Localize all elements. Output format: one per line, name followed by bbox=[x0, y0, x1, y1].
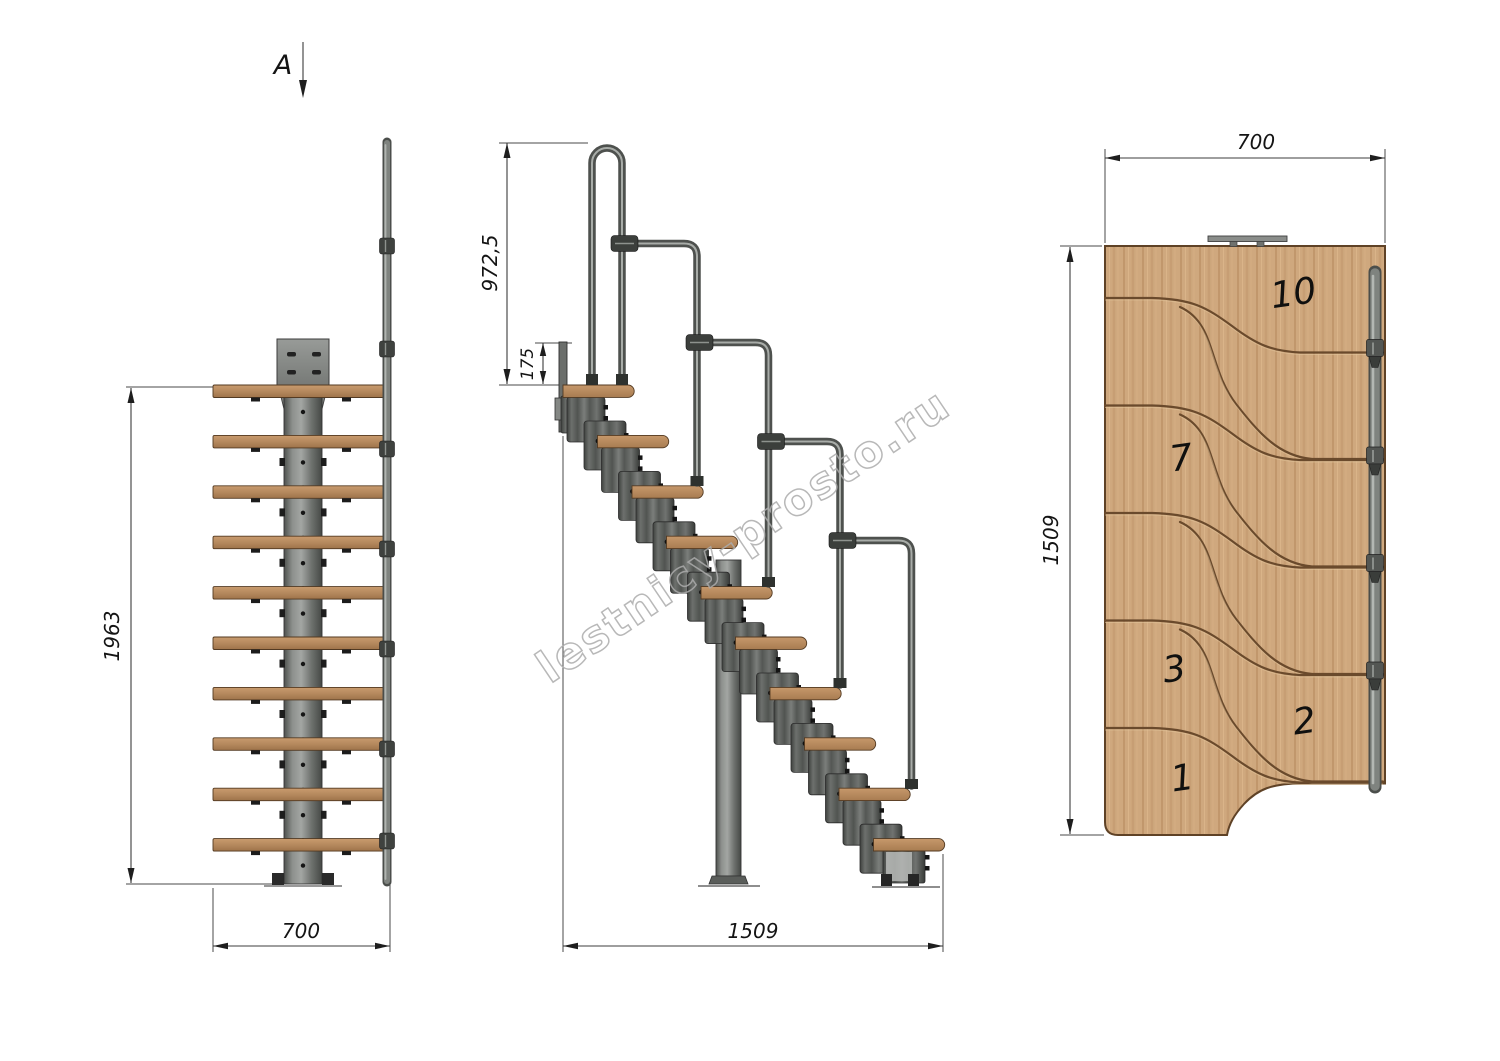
front-mount-plate bbox=[277, 339, 329, 385]
front-height-dimension: 1963 bbox=[100, 387, 282, 884]
front-width-label: 700 bbox=[282, 919, 320, 943]
section-marker: A bbox=[272, 42, 307, 98]
front-view: 1963 700 bbox=[100, 142, 395, 952]
section-arrow-icon bbox=[299, 80, 307, 98]
drawing-canvas: A 1963 700 bbox=[0, 0, 1500, 1061]
side-riser-label: 175 bbox=[518, 348, 538, 380]
side-handrail-height-label: 972,5 bbox=[478, 234, 502, 291]
step-number-10: 10 bbox=[1268, 270, 1319, 317]
plan-mount-plate bbox=[1208, 236, 1287, 247]
plan-depth-dimension: 1509 bbox=[1039, 246, 1104, 835]
plan-view: 700 1509 10 7 3 bbox=[1039, 130, 1385, 835]
front-height-label: 1963 bbox=[100, 611, 124, 662]
plan-depth-label: 1509 bbox=[1039, 515, 1063, 566]
plan-width-label: 700 bbox=[1237, 130, 1275, 154]
staircase-technical-drawing: A 1963 700 bbox=[0, 0, 1500, 1061]
section-label: A bbox=[272, 50, 292, 81]
side-run-label: 1509 bbox=[728, 919, 779, 943]
plan-width-dimension: 700 bbox=[1105, 130, 1385, 243]
